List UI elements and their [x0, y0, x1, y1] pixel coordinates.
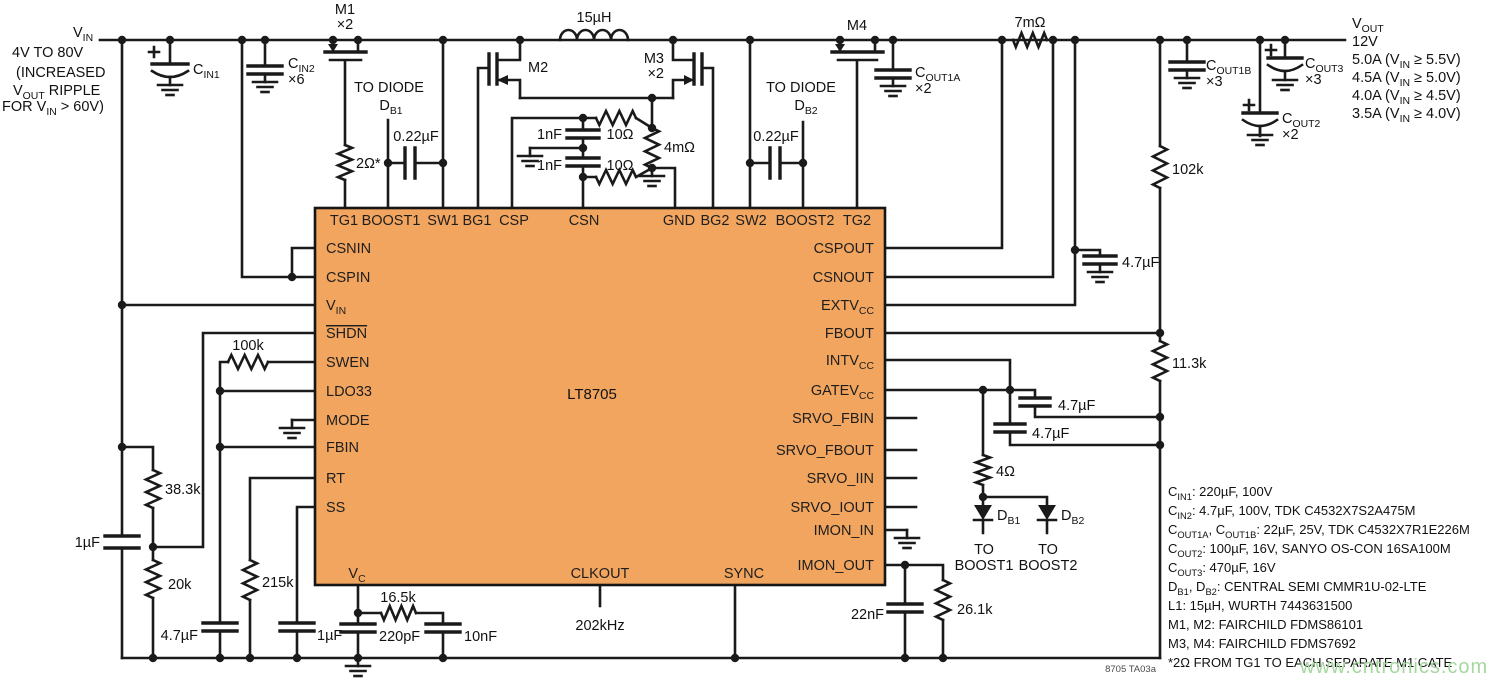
- label-c-vin-bypass: 1µF: [75, 535, 100, 551]
- inductor-15uh: [560, 30, 628, 40]
- cap-10nf: [426, 624, 460, 632]
- pin-cspout: CSPOUT: [814, 241, 875, 257]
- vout-rating-4: 3.5A (VIN ≥ 4.0V): [1352, 106, 1461, 125]
- pin-fbout: FBOUT: [825, 326, 874, 342]
- note-line-5: COUT3: 470µF, 16V: [1168, 560, 1276, 578]
- pin-ss: SS: [326, 500, 345, 516]
- resistor-102k: [1153, 146, 1167, 188]
- label-r-csn: 10Ω: [607, 158, 634, 174]
- vout-rating-1: 5.0A (VIN ≥ 5.5V): [1352, 52, 1461, 71]
- vin-label: VIN: [73, 25, 93, 44]
- pin-mode: MODE: [326, 413, 370, 429]
- pin-sync: SYNC: [724, 566, 764, 582]
- pin-sw2: SW2: [735, 213, 766, 229]
- ground-cout1a: [881, 78, 905, 96]
- pin-gnd: GND: [663, 213, 695, 229]
- ground-cin2: [253, 74, 277, 92]
- label-m1: M1: [335, 2, 355, 18]
- note-line-3: COUT1A, COUT1B: 22µF, 25V, TDK C4532X7R1…: [1168, 522, 1470, 540]
- label-cout2-qty: ×2: [1282, 127, 1299, 143]
- plus-cout2: [1244, 100, 1254, 110]
- resistor-20k: [146, 560, 160, 598]
- diode-db2: [1038, 505, 1056, 520]
- pin-imon-in: IMON_IN: [814, 523, 874, 539]
- ic-part-number: LT8705: [567, 386, 617, 403]
- vin-note-3: FOR VIN > 60V): [2, 99, 104, 118]
- net-imon: [885, 530, 943, 658]
- pin-csp: CSP: [499, 213, 529, 229]
- note-line-4: COUT2: 100µF, 16V, SANYO OS-CON 16SA100M: [1168, 541, 1451, 559]
- cap-1uf-left: [105, 536, 139, 548]
- cap-cout2-arc: [1243, 120, 1277, 126]
- lt8705-schematic: LT8705 TG1 BOOST1 SW1 BG1 CSP CSN GND BG…: [0, 0, 1487, 683]
- ground-cout3: [1273, 72, 1297, 90]
- label-cin2-qty: ×6: [288, 72, 305, 88]
- vout-rating-3: 4.0A (VIN ≥ 4.5V): [1352, 88, 1461, 107]
- label-r-tg1: 2Ω*: [356, 156, 381, 172]
- note-line-2: CIN2: 4.7µF, 100V, TDK C4532X7S2A475M: [1168, 503, 1416, 521]
- ground-cout2: [1248, 127, 1272, 145]
- label-m1-qty: ×2: [337, 17, 354, 33]
- pin-srvo-fbin: SRVO_FBIN: [792, 411, 874, 427]
- label-r-fb-bot: 11.3k: [1172, 356, 1207, 372]
- net-csnout: [885, 40, 1053, 277]
- label-db2-top: DB2: [794, 98, 817, 117]
- pin-srvo-iin: SRVO_IIN: [807, 471, 874, 487]
- label-m3: M3: [644, 51, 664, 67]
- cap-220pf: [341, 624, 375, 632]
- label-r-div-top: 38.3k: [165, 482, 201, 498]
- label-c-csn: 1nF: [537, 158, 562, 174]
- resistor-16k5: [381, 606, 416, 620]
- label-c-vc: 220pF: [379, 629, 420, 645]
- note-line-7: L1: 15µH, WURTH 7443631500: [1168, 598, 1352, 613]
- pin-boost2: BOOST2: [776, 213, 835, 229]
- pin-imon-out: IMON_OUT: [797, 558, 874, 574]
- label-c-imon: 22nF: [851, 607, 884, 623]
- vin-range: 4V TO 80V: [12, 45, 84, 61]
- pin-shdn: SHDN: [326, 326, 367, 342]
- vout-label: VOUT: [1352, 16, 1384, 35]
- pin-bg1: BG1: [462, 213, 491, 229]
- cap-ss: [280, 623, 314, 631]
- note-line-1: CIN1: 220µF, 100V: [1168, 484, 1273, 502]
- output-terminal: VOUT 12V 5.0A (VIN ≥ 5.5V) 4.5A (VIN ≥ 5…: [1352, 16, 1461, 125]
- input-terminal: VIN 4V TO 80V (INCREASED VOUT RIPPLE FOR…: [2, 25, 105, 118]
- label-db1-top: DB1: [379, 98, 402, 117]
- resistor-10ohm-csp: [596, 111, 636, 125]
- note-line-8: M1, M2: FAIRCHILD FDMS86101: [1168, 617, 1363, 632]
- note-line-9: M3, M4: FAIRCHILD FDMS7692: [1168, 636, 1356, 651]
- pin-csnout: CSNOUT: [813, 270, 874, 286]
- cap-boost2: [770, 148, 780, 178]
- pin-csnin: CSNIN: [326, 241, 371, 257]
- vin-note-1: (INCREASED: [16, 65, 105, 81]
- label-to-boost2-a: TO: [1038, 542, 1058, 558]
- pin-cspin: CSPIN: [326, 270, 370, 286]
- pin-bg2: BG2: [700, 213, 729, 229]
- label-r-fb-top: 102k: [1172, 162, 1204, 178]
- pin-fbin: FBIN: [326, 440, 359, 456]
- ground-cout1b: [1175, 70, 1199, 88]
- label-db2: DB2: [1061, 508, 1084, 527]
- label-cin1: CIN1: [193, 62, 220, 81]
- ground-mode: [280, 420, 304, 438]
- label-c-boost1: 0.22µF: [393, 129, 439, 145]
- label-r-sense-out: 7mΩ: [1015, 15, 1046, 31]
- label-r-div-bot: 20k: [168, 577, 192, 593]
- pin-srvo-iout: SRVO_IOUT: [790, 500, 874, 516]
- resistor-4mohm: [645, 128, 659, 168]
- ground-imonin: [895, 530, 919, 548]
- net-swen-ldo: [220, 362, 315, 658]
- label-db1: DB1: [997, 508, 1020, 527]
- label-c-csp: 1nF: [537, 127, 562, 143]
- label-r-imon: 26.1k: [957, 602, 993, 618]
- net-ss: [297, 507, 315, 658]
- resistor-215k: [243, 560, 257, 600]
- watermark: www.cntronics.com: [1299, 656, 1487, 678]
- pin-ldo33: LDO33: [326, 384, 372, 400]
- pin-rt: RT: [326, 471, 345, 487]
- plus-cin1: [149, 47, 159, 57]
- resistor-4ohm: [976, 455, 990, 485]
- label-m3-qty: ×2: [647, 66, 664, 82]
- pin-tg1: TG1: [330, 213, 358, 229]
- pin-srvo-fbout: SRVO_FBOUT: [776, 443, 874, 459]
- cap-1nf-bot: [567, 158, 599, 166]
- cap-cout3-arc: [1268, 65, 1302, 71]
- cap-intvcc: [1020, 398, 1050, 406]
- resistor-38k3: [146, 470, 160, 508]
- label-r-boost: 4Ω: [996, 464, 1015, 480]
- label-to-diode-db2: TO DIODE: [766, 80, 836, 96]
- pin-tg2: TG2: [843, 213, 871, 229]
- label-cout3-qty: ×3: [1305, 72, 1322, 88]
- label-c-gatevcc: 4.7µF: [1032, 426, 1070, 442]
- label-l1: 15µH: [577, 10, 612, 26]
- label-m2: M2: [528, 60, 548, 76]
- label-r-csp: 10Ω: [607, 127, 634, 143]
- resistor-2ohm: [338, 145, 352, 180]
- label-c-boost2: 0.22µF: [753, 129, 799, 145]
- label-cout1a-qty: ×2: [915, 81, 932, 97]
- label-c-ss: 1µF: [317, 628, 342, 644]
- label-c-vc2: 10nF: [464, 629, 497, 645]
- ground-cin1: [158, 77, 182, 95]
- label-to-boost1-a: TO: [974, 542, 994, 558]
- pin-swen: SWEN: [326, 355, 370, 371]
- net-srvo-stubs: [885, 418, 916, 507]
- label-c-intvcc: 4.7µF: [1058, 398, 1096, 414]
- pin-csn: CSN: [569, 213, 600, 229]
- resistor-7mohm: [1013, 33, 1047, 47]
- resistor-100k: [228, 355, 268, 369]
- label-to-diode-db1: TO DIODE: [354, 80, 424, 96]
- resistor-26k1: [936, 580, 950, 620]
- diode-db1: [974, 505, 992, 520]
- label-r-vc: 16.5k: [380, 590, 416, 606]
- net-gatevcc: [885, 390, 1160, 417]
- label-r-rt: 215k: [262, 575, 294, 591]
- note-line-6: DB1, DB2: CENTRAL SEMI CMMR1U-02-LTE: [1168, 579, 1427, 597]
- label-c-fbin: 4.7µF: [161, 628, 199, 644]
- vout-voltage: 12V: [1352, 34, 1378, 50]
- vout-rating-2: 4.5A (VIN ≥ 5.0V): [1352, 70, 1461, 89]
- pin-clkout: CLKOUT: [571, 566, 630, 582]
- ground-extvcc-cap: [1088, 264, 1112, 282]
- label-clkout-freq: 202kHz: [575, 618, 624, 634]
- figure-code: 8705 TA03a: [1105, 664, 1157, 675]
- plus-cout3: [1266, 45, 1276, 55]
- net-shdn: [153, 333, 315, 547]
- resistor-11k3: [1153, 341, 1167, 381]
- cap-fbin: [203, 623, 237, 631]
- label-m4: M4: [847, 18, 867, 34]
- label-r-sense-in: 4mΩ: [664, 140, 695, 156]
- label-r-swen: 100k: [232, 338, 264, 354]
- label-c-extvcc: 4.7µF: [1122, 255, 1160, 271]
- label-to-boost2-b: BOOST2: [1019, 558, 1078, 574]
- net-boost-diodes: [983, 390, 1047, 533]
- cap-gatevcc: [995, 424, 1025, 432]
- cap-22nf: [888, 604, 922, 612]
- schematic-page: LT8705 TG1 BOOST1 SW1 BG1 CSP CSN GND BG…: [0, 0, 1487, 683]
- label-to-boost1-b: BOOST1: [955, 558, 1014, 574]
- pin-sw1: SW1: [427, 213, 458, 229]
- pin-boost1: BOOST1: [362, 213, 421, 229]
- label-cout1b-qty: ×3: [1206, 74, 1223, 90]
- cap-boost1: [405, 148, 415, 178]
- cap-1nf-top: [567, 130, 599, 138]
